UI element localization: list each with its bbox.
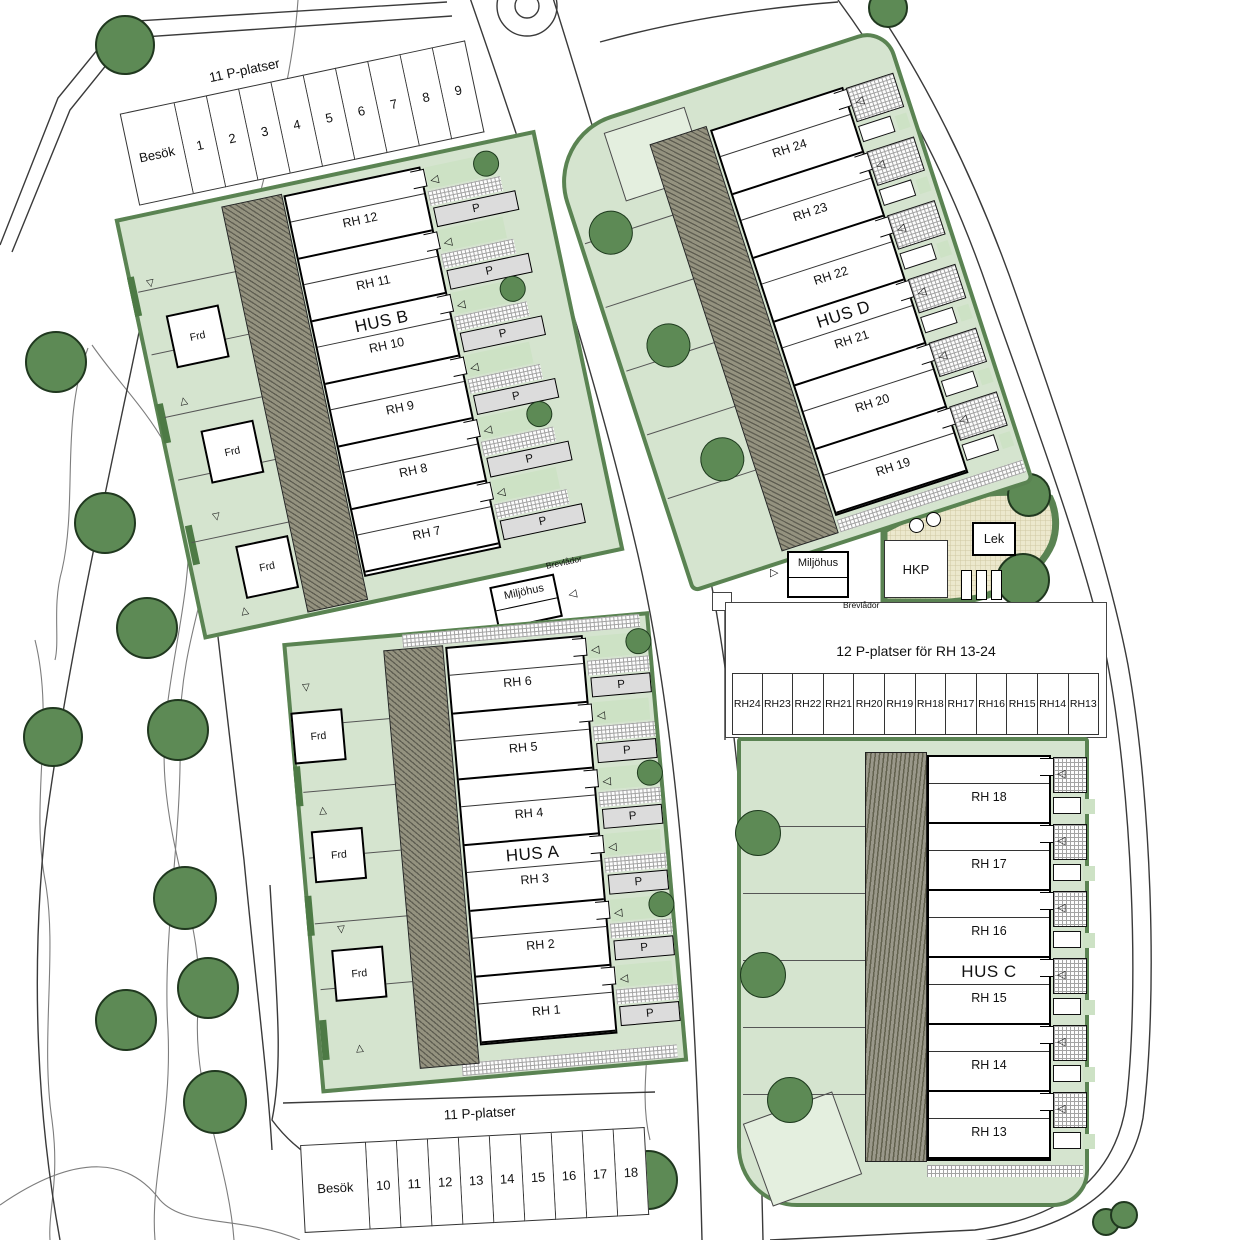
tree (24, 708, 82, 766)
slope-arrow-icon (301, 677, 310, 696)
parking-space-12: 12 (428, 1137, 464, 1227)
parking-space-rh13: RH13 (1069, 673, 1100, 735)
shed-frd: Frd (290, 708, 346, 764)
parking-space-17: 17 (583, 1129, 619, 1219)
accessible-parking: HKP (884, 540, 948, 598)
shed-frd: Frd (311, 827, 367, 883)
tree (184, 1071, 246, 1133)
slope-arrow-icon (318, 800, 327, 819)
parking-lot-south: 11 P-platser Besök 10 11 12 13 14 15 16 … (282, 1083, 729, 1246)
unit-rh-16: RH 16 (929, 891, 1049, 958)
building-c-back-strip (865, 752, 927, 1162)
tree (647, 890, 675, 918)
parking-space-rh24: RH24 (732, 673, 763, 735)
parking-space-rh18: RH18 (916, 673, 947, 735)
parking-space-rh15: RH15 (1007, 673, 1038, 735)
parking-space-rh17: RH17 (946, 673, 977, 735)
tree (740, 952, 786, 998)
slope-arrow-icon (337, 919, 346, 938)
parking-space-18: 18 (614, 1127, 650, 1217)
parcel-hus-a: Frd Frd Frd RH 6 RH 5 RH 4 RH 3 RH 2 RH … (272, 583, 714, 1116)
entrance-arrow-icon (770, 563, 778, 581)
bench (991, 570, 1002, 600)
parking-space-rh23: RH23 (763, 673, 794, 735)
slope-arrow-icon (355, 1038, 364, 1057)
tree (154, 867, 216, 929)
tree (96, 16, 154, 74)
parking-space-rh14: RH14 (1038, 673, 1069, 735)
unit-rh-6: RH 6 (447, 637, 586, 714)
shed-frd: Frd (331, 946, 387, 1002)
parcel-hus-c: RH 18 RH 17 RH 16 RH 15 RH 14 RH 13 HUS … (737, 737, 1127, 1227)
parking-space-13: 13 (459, 1135, 495, 1225)
parking-space-rh19: RH19 (885, 673, 916, 735)
unit-rh-1: RH 1 (476, 966, 615, 1043)
building-hus-c: RH 18 RH 17 RH 16 RH 15 RH 14 RH 13 HUS … (927, 755, 1051, 1161)
parking-pad: P (613, 935, 675, 960)
parking-title-east: 12 P-platser för RH 13-24 (746, 643, 1086, 659)
parking-pad: P (590, 672, 652, 697)
unit-rh-17: RH 17 (929, 824, 1049, 891)
unit-rh-4: RH 4 (459, 769, 598, 846)
parking-pad: P (619, 1001, 681, 1026)
tree (26, 332, 86, 392)
parking-space-rh22: RH22 (793, 673, 824, 735)
parking-space-rh21: RH21 (824, 673, 855, 735)
unit-rh-14: RH 14 (929, 1025, 1049, 1092)
parking-title-south: 11 P-platser (329, 1098, 629, 1129)
site-plan: { "plan": { "buildings": [ {"id": "husB"… (0, 0, 1240, 1240)
shed-frd: Frd (166, 304, 230, 368)
building-c-yards (1053, 755, 1109, 1157)
tree (96, 990, 156, 1050)
parking-space-14: 14 (490, 1134, 526, 1224)
shed-frd: Frd (200, 420, 264, 484)
unit-rh-2: RH 2 (470, 900, 609, 977)
parking-space-10: 10 (366, 1140, 402, 1230)
parking-space-11: 11 (397, 1138, 433, 1228)
tree (767, 1077, 813, 1123)
parking-space-besok: Besök (300, 1142, 371, 1233)
unit-rh-13: RH 13 (929, 1092, 1049, 1159)
tree (636, 759, 664, 787)
tree (178, 958, 238, 1018)
parking-lot-east: 12 P-platser för RH 13-24 RH24 RH23 RH22… (725, 602, 1107, 738)
play-equipment (926, 512, 941, 527)
play-equipment (909, 518, 924, 533)
shed-frd: Frd (235, 535, 299, 599)
tree (75, 493, 135, 553)
parking-space-rh16: RH16 (977, 673, 1008, 735)
parking-space-16: 16 (552, 1130, 588, 1220)
waste-house: Miljöhus (787, 551, 849, 598)
bench (976, 570, 987, 600)
tree (735, 810, 781, 856)
mailboxes-label: Brevlådor (843, 600, 879, 610)
parking-space-rh20: RH20 (854, 673, 885, 735)
playground-label: Lek (972, 522, 1016, 556)
unit-rh-18: RH 18 (929, 757, 1049, 824)
bench (961, 570, 972, 600)
parking-pad: P (602, 804, 664, 829)
unit-rh-5: RH 5 (453, 703, 592, 780)
parking-space-15: 15 (521, 1132, 557, 1222)
building-label-hus-c: HUS C (929, 962, 1049, 982)
